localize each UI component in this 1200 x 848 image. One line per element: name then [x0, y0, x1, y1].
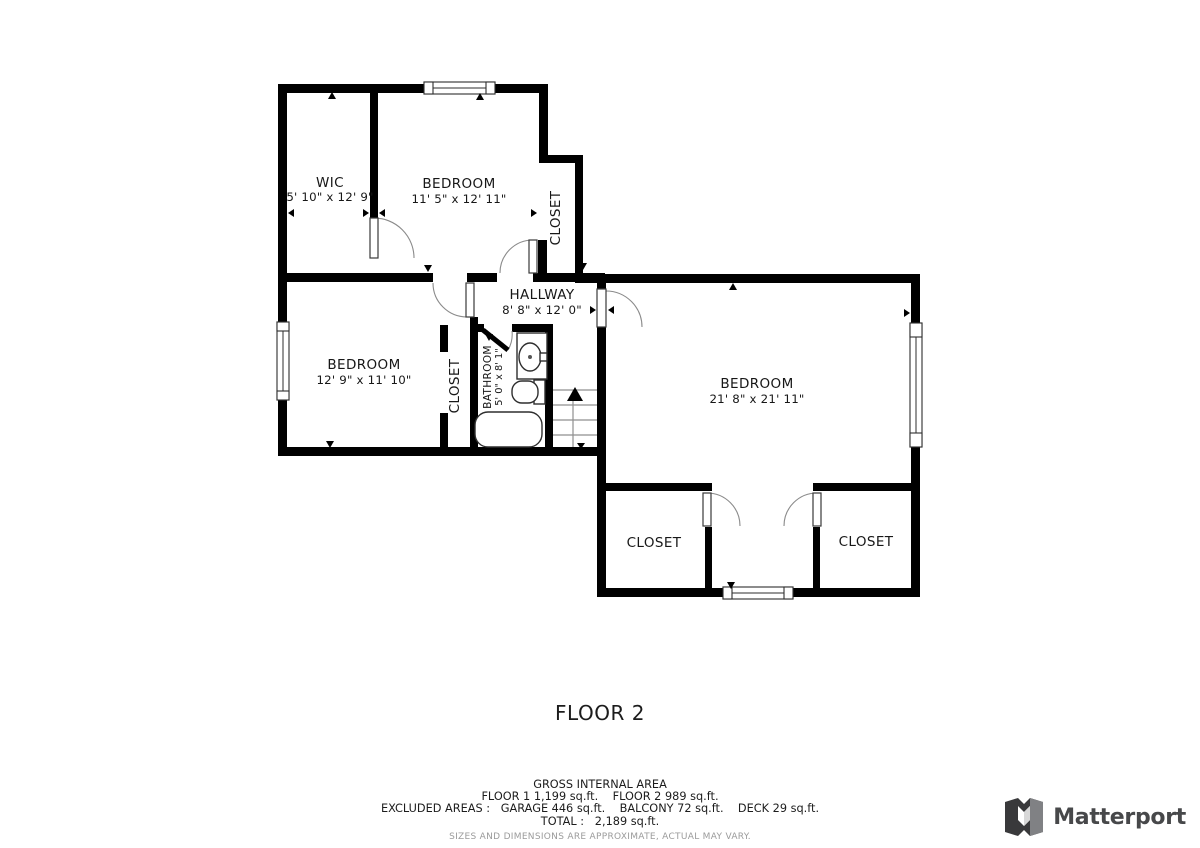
door-main-bedroom	[597, 289, 642, 327]
window-top-bedroom	[424, 82, 495, 94]
floor-title: FLOOR 2	[0, 701, 1200, 725]
floorplan-page: WIC 5' 10" x 12' 9" BEDROOM 11' 5" x 12'…	[0, 0, 1200, 848]
door-top-bedroom	[500, 240, 537, 273]
toilet	[512, 380, 545, 404]
staircase	[553, 387, 597, 449]
bathtub	[475, 412, 542, 447]
room-label-bedroom-main: BEDROOM	[720, 376, 793, 392]
door-closet-right	[784, 493, 821, 526]
room-label-closet-top: CLOSET	[548, 190, 564, 245]
room-dims-bedroom-main: 21' 8" x 21' 11"	[709, 392, 804, 406]
room-label-bedroom-top: BEDROOM	[422, 176, 495, 192]
sink-vanity	[517, 333, 547, 379]
door-wic	[370, 218, 414, 258]
room-dims-bedroom-left: 12' 9" x 11' 10"	[316, 373, 411, 387]
window-main-bedroom	[910, 323, 922, 447]
walls	[278, 84, 920, 597]
room-label-closet-bottom-right: CLOSET	[839, 534, 894, 550]
room-label-hallway: HALLWAY	[509, 287, 574, 303]
door-closet-left	[703, 493, 740, 526]
stairs-up-arrow-icon	[567, 387, 583, 401]
room-dims-bathroom: 5' 0" x 8' 1"	[494, 348, 505, 406]
room-label-bathroom: BATHROOM	[482, 345, 494, 409]
window-bottom	[723, 587, 793, 599]
matterport-wordmark: Matterport	[1053, 805, 1186, 830]
matterport-branding: Matterport	[1004, 797, 1186, 837]
room-dims-hallway: 8' 8" x 12' 0"	[502, 303, 582, 317]
room-label-closet-mid: CLOSET	[447, 358, 463, 413]
room-label-closet-bottom-left: CLOSET	[627, 535, 682, 551]
room-label-bedroom-left: BEDROOM	[327, 357, 400, 373]
door-left-bedroom	[433, 283, 474, 317]
room-label-wic: WIC	[316, 175, 344, 191]
matterport-logo-icon	[1004, 797, 1044, 837]
room-dims-wic: 5' 10" x 12' 9"	[286, 190, 373, 204]
floorplan-drawing: WIC 5' 10" x 12' 9" BEDROOM 11' 5" x 12'…	[0, 0, 1200, 660]
room-dims-bedroom-top: 11' 5" x 12' 11"	[411, 192, 506, 206]
window-left-bedroom	[277, 322, 289, 400]
